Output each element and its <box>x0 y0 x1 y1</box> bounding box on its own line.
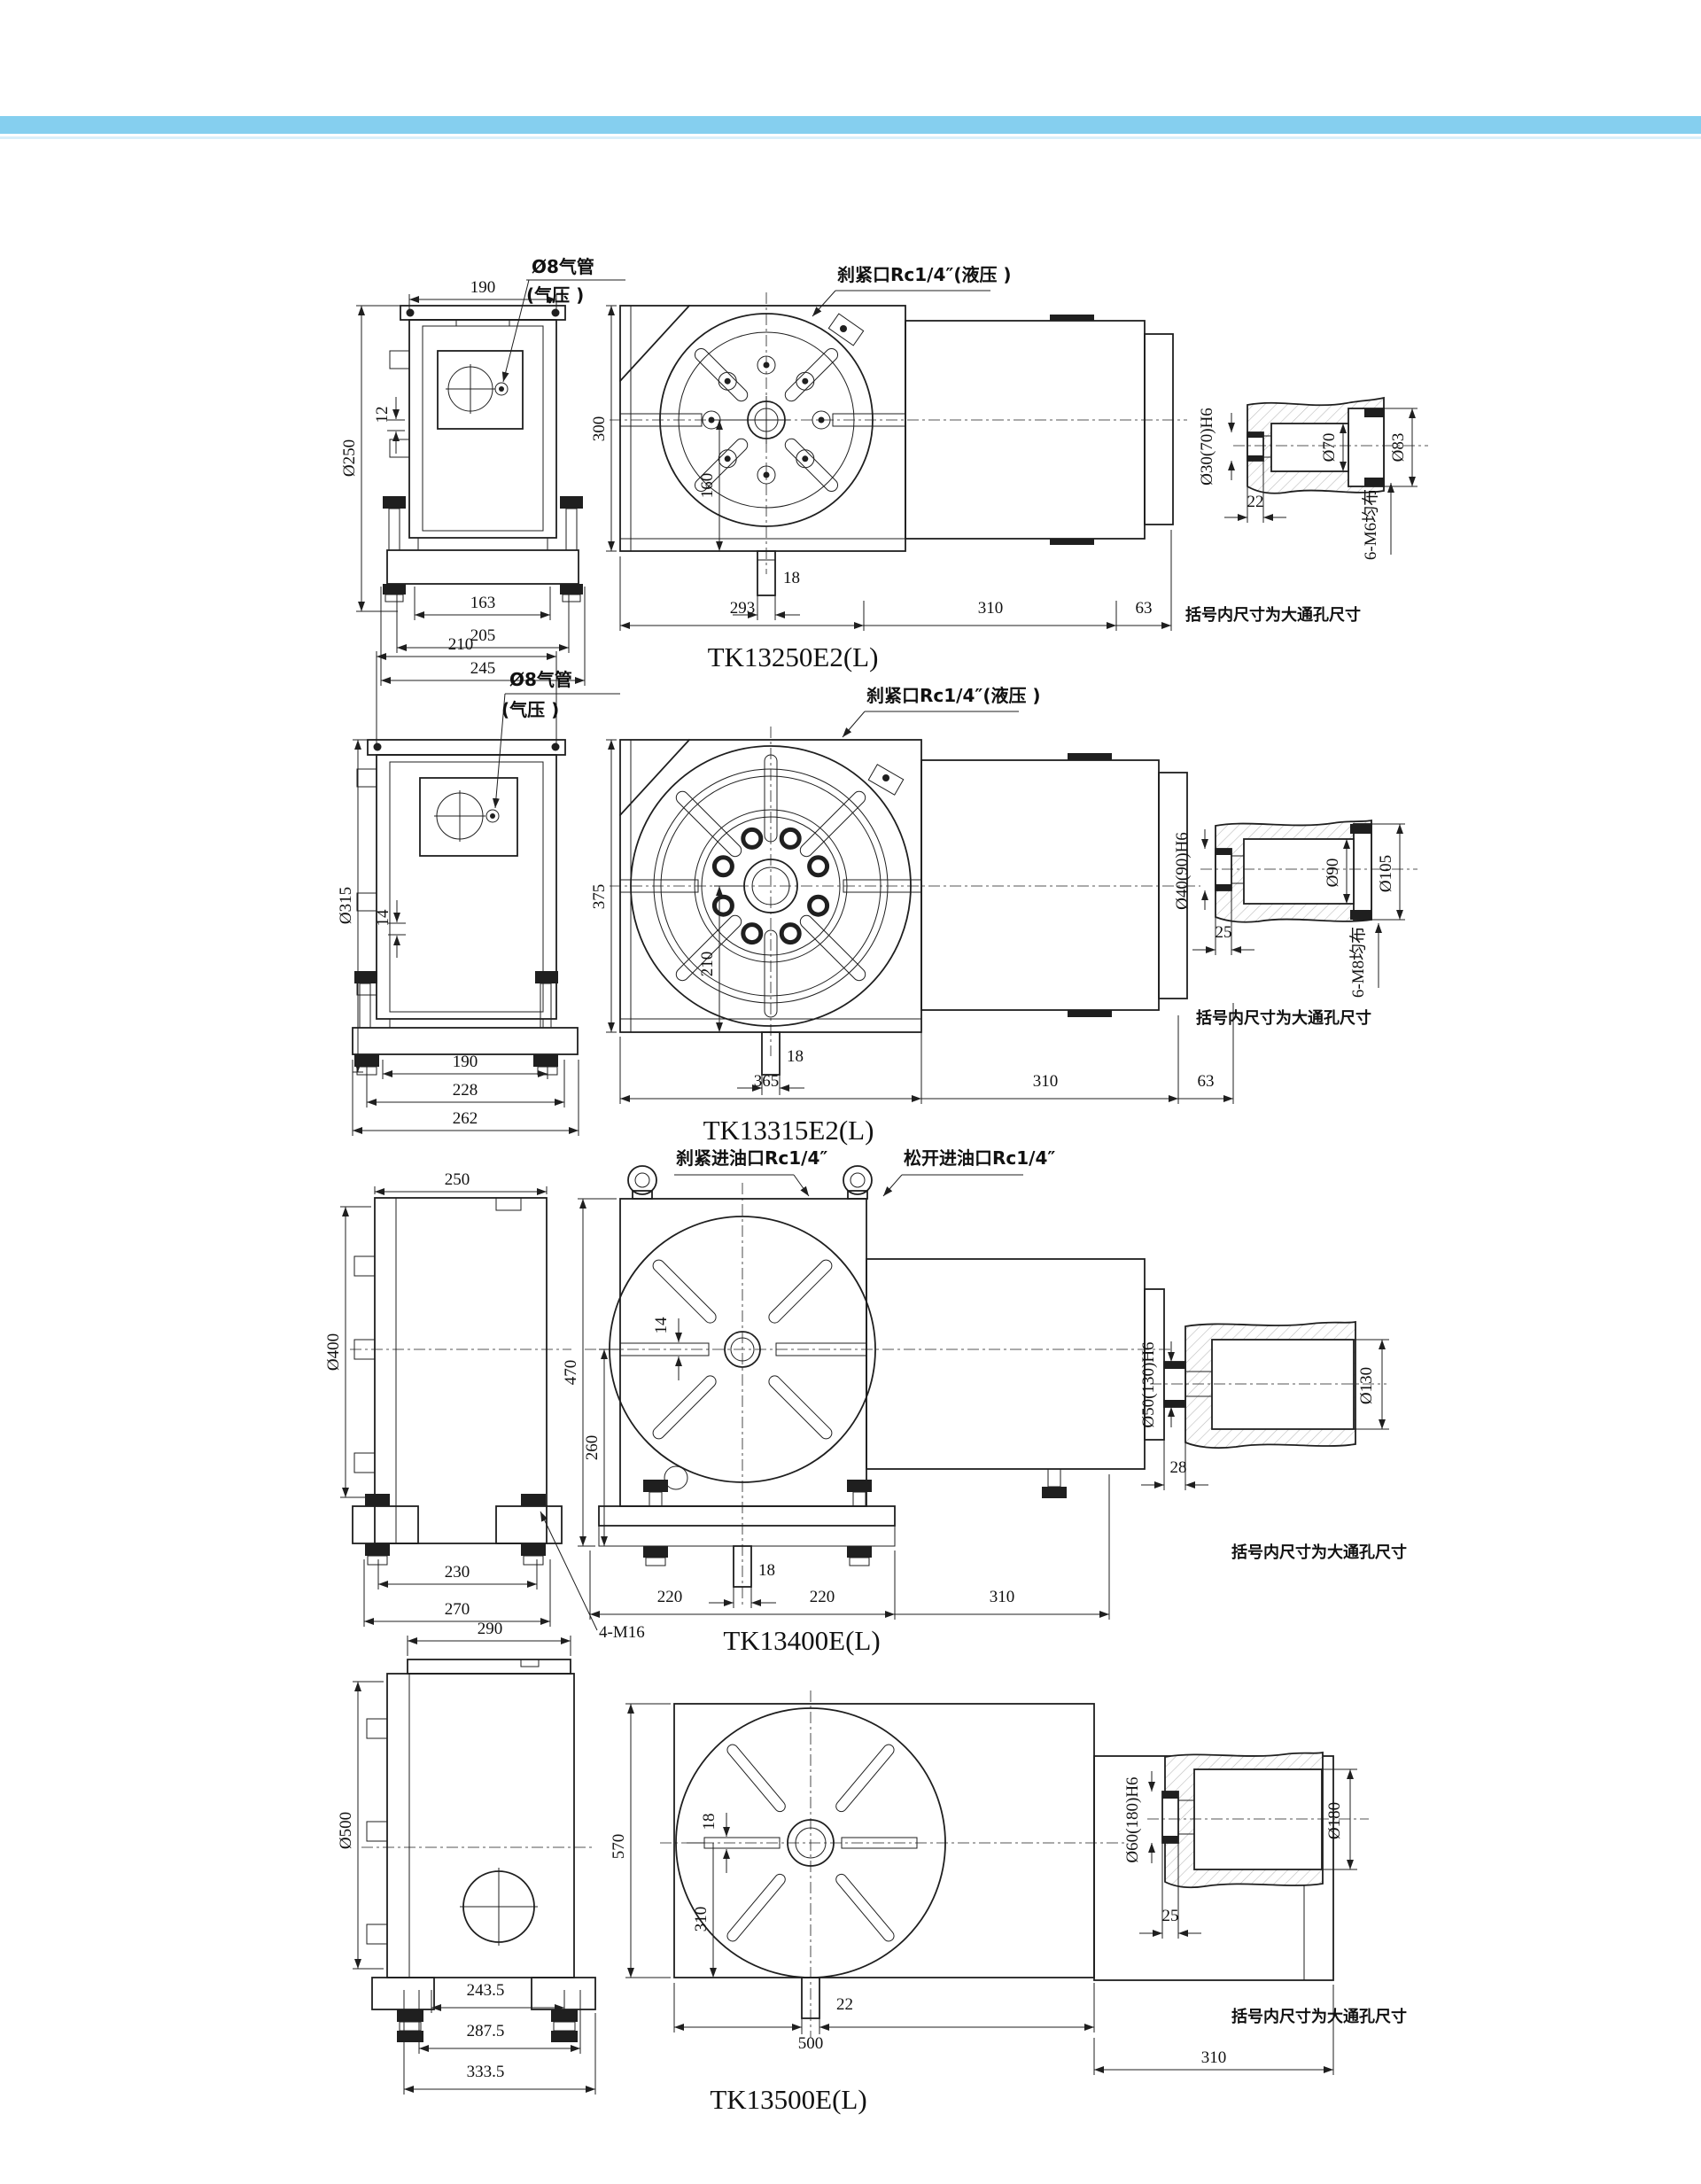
callout-clamp-oil-port: 刹紧进油口Rc1/4″ <box>676 1147 827 1169</box>
side-view-tk13250: 190 Ø250 12 163 205 245 Ø8气管 (气压 ) <box>340 256 625 686</box>
callout-foundation-bolts: 4-M16 <box>599 1623 645 1642</box>
dim-detail-inner-dia: Ø70 <box>1320 433 1339 462</box>
dim-front-height: 570 <box>610 1834 628 1860</box>
dim-front-center-height: 160 <box>698 473 717 499</box>
dim-side-d1: 243.5 <box>467 1981 505 2000</box>
catalog-page: 190 Ø250 12 163 205 245 Ø8气管 (气压 ) <box>0 0 1701 2184</box>
dim-front-slot: 18 <box>787 1047 804 1066</box>
row-tk13250: 190 Ø250 12 163 205 245 Ø8气管 (气压 ) <box>340 256 1428 686</box>
model-label-tk13400: TK13400E(L) <box>723 1625 880 1656</box>
dim-side-offset: 14 <box>374 909 392 927</box>
dim-detail-bore: Ø60(180)H6 <box>1123 1776 1142 1862</box>
dim-detail-len: 25 <box>1162 1907 1179 1925</box>
dim-front-w2: 310 <box>1033 1072 1059 1091</box>
dim-side-d2: 205 <box>470 626 496 645</box>
dim-side-dia: Ø315 <box>337 887 355 924</box>
dim-side-top: 250 <box>445 1170 470 1189</box>
callout-air-pressure: (气压 ) <box>501 699 559 720</box>
shaft-detail-tk13315: Ø40(90)H6 25 Ø90 Ø105 6-M8均布 括号内尺寸为大通孔尺寸 <box>1173 820 1417 1028</box>
callout-release-oil-port: 松开进油口Rc1/4″ <box>904 1147 1055 1169</box>
dim-front-w2: 310 <box>978 599 1004 618</box>
header-band <box>0 116 1701 139</box>
dim-front-w2: 220 <box>810 1588 835 1606</box>
dim-front-w3: 63 <box>1136 599 1153 618</box>
technical-drawing-sheet: 190 Ø250 12 163 205 245 Ø8气管 (气压 ) <box>0 0 1701 2184</box>
dim-side-top: 290 <box>478 1620 503 1638</box>
note-parenthesis: 括号内尺寸为大通孔尺寸 <box>1231 1543 1407 1562</box>
callout-clamp-port: 刹紧口Rc1/4″(液压 ) <box>837 264 1012 285</box>
note-parenthesis: 括号内尺寸为大通孔尺寸 <box>1196 1008 1371 1028</box>
dim-front-stub: 22 <box>836 1995 853 2014</box>
side-view-tk13500: 290 Ø500 243.5 287.5 333.5 <box>337 1620 595 2095</box>
dim-side-dia: Ø400 <box>324 1333 343 1371</box>
callout-air-pressure: (气压 ) <box>526 284 584 306</box>
dim-detail-outer-dia: Ø180 <box>1325 1802 1344 1839</box>
dim-front-stub: 18 <box>758 1561 775 1580</box>
note-parenthesis: 括号内尺寸为大通孔尺寸 <box>1185 605 1361 625</box>
dim-front-slot: 14 <box>652 1317 671 1334</box>
dim-front-w3: 310 <box>990 1588 1015 1606</box>
dim-detail-outer-dia: Ø83 <box>1389 433 1408 462</box>
dim-side-d3: 245 <box>470 659 496 678</box>
dim-front-center-height: 210 <box>698 952 717 977</box>
dim-detail-inner-dia: Ø90 <box>1324 859 1342 888</box>
dim-side-offset: 12 <box>373 407 392 424</box>
dim-detail-len: 28 <box>1170 1458 1187 1477</box>
callout-air-pipe: Ø8气管 <box>532 256 594 277</box>
dim-detail-outer-dia: Ø105 <box>1377 855 1395 892</box>
model-label-tk13250: TK13250E2(L) <box>708 641 879 672</box>
shaft-detail-tk13500: Ø60(180)H6 25 Ø180 括号内尺寸为大通孔尺寸 <box>1123 1753 1407 2026</box>
dim-detail-outer-dia: Ø130 <box>1357 1367 1376 1404</box>
dim-front-w1: 365 <box>754 1072 780 1091</box>
dim-front-slot: 18 <box>700 1814 718 1830</box>
dim-front-w1: 220 <box>657 1588 683 1606</box>
dim-side-d2: 228 <box>453 1081 478 1100</box>
dim-side-d3: 262 <box>453 1109 478 1128</box>
dim-detail-bore: Ø50(130)H6 <box>1139 1341 1158 1427</box>
shaft-detail-tk13400: Ø50(130)H6 28 Ø130 括号内尺寸为大通孔尺寸 <box>1139 1322 1407 1562</box>
dim-side-d1: 190 <box>453 1053 478 1071</box>
dim-front-center-height: 310 <box>692 1907 711 1932</box>
dim-detail-bore: Ø40(90)H6 <box>1173 832 1192 910</box>
dim-front-w2: 310 <box>1201 2048 1227 2067</box>
dim-front-w3: 63 <box>1198 1072 1215 1091</box>
dim-side-top: 210 <box>448 635 474 654</box>
dim-detail-bolts: 6-M8均布 <box>1348 927 1368 998</box>
dim-side-d2: 270 <box>445 1600 470 1619</box>
dim-front-slot: 18 <box>783 569 800 587</box>
front-view-tk13400: 刹紧进油口Rc1/4″ 松开进油口Rc1/4″ 470 260 14 18 <box>562 1147 1174 1656</box>
dim-detail-bolts: 6-M6均布 <box>1361 489 1380 560</box>
dim-front-center-height: 260 <box>583 1435 602 1461</box>
model-label-tk13500: TK13500E(L) <box>710 2084 866 2115</box>
dim-side-top: 190 <box>470 278 496 297</box>
front-view-tk13500: 570 310 18 22 500 310 TK13500E(L) <box>610 1690 1333 2115</box>
dim-front-height: 375 <box>590 884 609 910</box>
callout-clamp-port: 刹紧口Rc1/4″(液压 ) <box>866 685 1041 706</box>
model-label-tk13315: TK13315E2(L) <box>703 1115 874 1146</box>
side-view-tk13315: 210 Ø315 14 190 228 262 Ø8气管 (气压 ) <box>337 635 620 1136</box>
dim-side-dia: Ø500 <box>337 1812 355 1849</box>
dim-front-height: 470 <box>562 1360 580 1386</box>
dim-detail-len: 25 <box>1216 923 1232 942</box>
front-view-tk13315: 375 210 18 365 310 63 刹紧口Rc1/4″(液压 ) TK1… <box>590 685 1233 1146</box>
dim-side-d2: 287.5 <box>467 2022 505 2040</box>
shaft-detail-tk13250: Ø70 Ø83 Ø30(70)H6 22 6-M6均布 括号内尺寸为大通孔尺寸 <box>1185 398 1428 625</box>
row-tk13400: 250 Ø400 230 270 4-M16 <box>324 1147 1407 1656</box>
dim-side-d1: 163 <box>470 594 496 612</box>
callout-air-pipe: Ø8气管 <box>509 669 572 690</box>
dim-front-w1: 500 <box>798 2034 824 2053</box>
side-view-tk13400: 250 Ø400 230 270 4-M16 <box>324 1170 645 1642</box>
note-parenthesis: 括号内尺寸为大通孔尺寸 <box>1231 2007 1407 2026</box>
dim-side-d1: 230 <box>445 1563 470 1582</box>
dim-side-d3: 333.5 <box>467 2063 505 2081</box>
front-view-tk13250: 300 160 18 293 310 63 刹紧口Rc1/4″(液压 ) TK1… <box>590 264 1187 672</box>
dim-detail-len: 22 <box>1247 493 1264 511</box>
row-tk13500: 290 Ø500 243.5 287.5 333.5 <box>337 1620 1407 2115</box>
dim-front-height: 300 <box>590 416 609 442</box>
dim-front-w1: 293 <box>730 599 756 618</box>
dim-side-dia: Ø250 <box>340 439 359 477</box>
dim-detail-bore: Ø30(70)H6 <box>1198 408 1216 486</box>
row-tk13315: 210 Ø315 14 190 228 262 Ø8气管 (气压 ) <box>337 635 1417 1146</box>
